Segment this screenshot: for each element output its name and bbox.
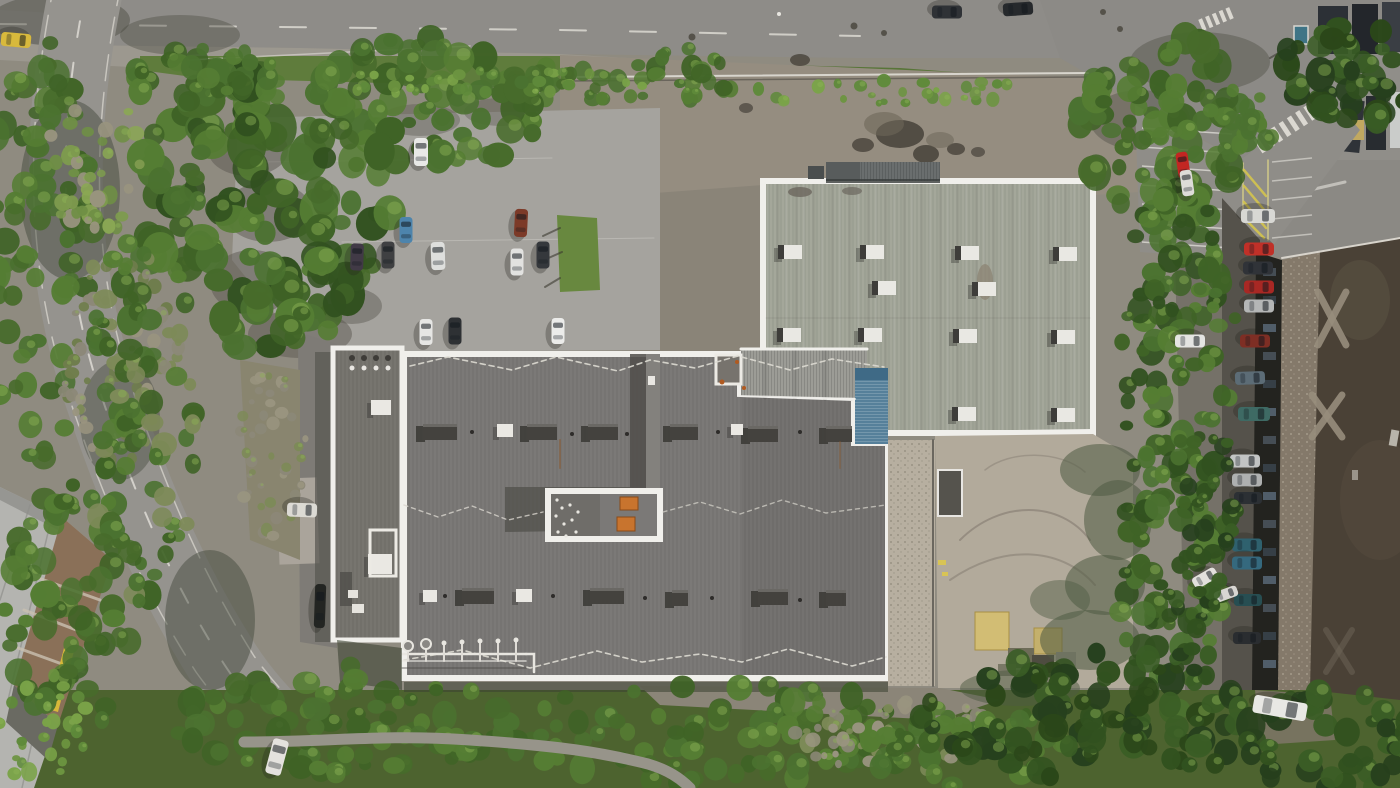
trees-right-lower	[1119, 567, 1132, 578]
trees-bottom-left-highlight	[410, 695, 416, 700]
bushes-strip-highlight	[562, 69, 566, 73]
trees-strip	[637, 92, 648, 100]
bushes-strip-highlight	[479, 68, 483, 71]
rocky-bottom	[810, 751, 821, 761]
car-part	[514, 209, 528, 238]
car-part	[1234, 594, 1262, 606]
trees-upper-band-highlight	[318, 124, 327, 132]
oil-stain	[790, 54, 810, 66]
yard-tree-shadow	[1030, 580, 1090, 620]
trees-ne-corner	[1375, 43, 1390, 55]
trees-left-mid	[93, 431, 113, 449]
trees-right-lower	[1137, 447, 1155, 468]
trees-upper-left	[306, 176, 331, 203]
right-facade-doors	[1263, 548, 1276, 556]
bushes-strip-highlight	[437, 76, 441, 79]
trees-ne-corner	[1370, 19, 1392, 43]
trees-bottom-left	[182, 727, 203, 753]
car-part	[1241, 209, 1275, 223]
trees-left-mid	[176, 292, 195, 313]
pipe-flange-small	[442, 641, 447, 646]
trees-bottom-left-highlight	[308, 748, 318, 757]
car-part	[1233, 632, 1261, 644]
grass-left-top	[62, 117, 77, 130]
grass-left-top	[82, 127, 94, 137]
trees-bottom-mid	[728, 764, 745, 784]
trees-upper-band	[329, 118, 352, 140]
grass-left-top	[71, 155, 83, 169]
trees-bottom-right	[1087, 682, 1110, 709]
aerial-photo-stage	[0, 0, 1400, 788]
trees-overhang-lane2-highlight	[1194, 547, 1202, 555]
roof-units-row2-top	[462, 588, 494, 591]
car-part	[1249, 282, 1254, 292]
rocky-bottom	[805, 732, 820, 747]
trees-corner-se-highlight	[1267, 740, 1275, 747]
car-part	[1263, 301, 1269, 311]
trees-bottom-mid-highlight	[796, 758, 806, 767]
grass-left-top	[49, 155, 62, 170]
lightwell-pipes	[560, 506, 563, 509]
trees-bottom-mid-highlight	[690, 743, 700, 752]
bushes-strip	[453, 69, 466, 80]
trees-upper-band-highlight	[426, 102, 434, 109]
trees-left-mid-highlight	[171, 518, 179, 525]
trees-right-mid	[1194, 283, 1207, 295]
car-part	[433, 260, 444, 265]
trees-upper-band-highlight	[376, 105, 385, 113]
trees-far-left-highlight	[15, 73, 27, 83]
trees-left-mid	[117, 339, 143, 361]
trees-right-mid	[1209, 288, 1223, 298]
trees-upper-band-highlight	[325, 66, 336, 76]
trees-right-mid	[1153, 296, 1166, 310]
lightwell-pipes	[576, 510, 579, 513]
trees-bottom-right-highlight	[993, 742, 1004, 752]
trees-ne-corner-highlight	[1375, 110, 1386, 120]
manhole	[881, 30, 887, 36]
rocky-left	[58, 386, 70, 397]
trees-bottom-mid-highlight	[766, 725, 778, 735]
trees-bottom-right	[1136, 645, 1160, 673]
trees-right-mid-highlight	[1153, 410, 1163, 419]
trees-overhang-lane	[1220, 457, 1233, 472]
roof-white-hatches	[423, 590, 437, 602]
trees-bottom-mid	[840, 682, 863, 710]
rooftop-box	[808, 166, 824, 179]
trees-bottom-right	[1048, 672, 1071, 696]
trees-bottom-mid-highlight	[748, 729, 759, 739]
right-facade-doors	[1263, 604, 1276, 612]
trees-right-lower-highlight	[1119, 604, 1129, 613]
trees-far-left	[16, 245, 34, 262]
trees-upper-left-highlight	[276, 179, 293, 195]
rocky-left	[84, 377, 91, 384]
bushes-strip	[388, 80, 401, 92]
trees-bottom-left	[178, 687, 206, 717]
trees-left-mid	[168, 262, 183, 279]
trees-bottom-left	[251, 681, 278, 705]
bushes-strip2	[876, 100, 882, 107]
trees-left-mid-highlight	[135, 306, 142, 312]
manhole	[1100, 9, 1106, 15]
grass-left-top	[44, 129, 57, 141]
trees-bottom-right-highlight	[931, 721, 938, 728]
bushes-strip2	[840, 95, 847, 103]
car-part	[538, 259, 548, 263]
trees-bottom-right	[1130, 695, 1149, 716]
bushes-strip	[434, 75, 443, 85]
car-part	[552, 318, 565, 344]
trees-bottom-left	[379, 711, 397, 726]
trees-right-lower	[1202, 634, 1217, 647]
trees-corner-se	[1305, 679, 1331, 707]
grass-left-bottom	[12, 755, 20, 761]
trees-bottom-mid-highlight	[737, 679, 749, 689]
rocky-slope-mid	[257, 503, 265, 510]
trees-overhang-lane2	[1182, 570, 1193, 580]
car-part	[6, 34, 12, 45]
trees-upper-band-highlight	[407, 52, 418, 62]
trees-far-left	[59, 252, 84, 274]
car-part	[287, 502, 317, 517]
bushes-strip	[421, 84, 429, 93]
trees-bottom-right	[922, 693, 938, 712]
car-part	[0, 32, 31, 49]
roof-small-dots	[625, 432, 629, 436]
trees-upper-band	[483, 143, 514, 168]
trees-left-mid-highlight	[111, 252, 120, 260]
trees-bottom-right	[1181, 757, 1197, 772]
car-part	[1237, 540, 1242, 550]
trees-left-lower	[36, 580, 61, 608]
roof-white-hatches	[731, 424, 743, 435]
trees-upper-left-highlight	[196, 195, 204, 202]
trees-right-lower	[1153, 579, 1168, 590]
grass-left-bottom-highlight	[21, 759, 25, 763]
bushes-strip2-highlight	[695, 89, 698, 92]
trees-left-lower	[1, 555, 28, 585]
trees-right-mid	[1203, 412, 1221, 428]
rocky-slope-mid	[266, 416, 279, 430]
trees-bottom-mid-highlight	[808, 683, 819, 692]
car-part	[432, 247, 443, 253]
trees-upper-left-highlight	[250, 217, 258, 224]
trees-strip2-highlight	[679, 79, 684, 84]
trees-right-mid	[1200, 205, 1214, 217]
trees-upper-left	[318, 320, 338, 340]
trees-bottom-mid	[752, 755, 771, 770]
trees-corner-se-highlight	[1363, 689, 1371, 696]
car-part	[1244, 243, 1274, 256]
trees-bottom-mid	[667, 725, 685, 740]
rocky-slope-mid-highlight	[243, 428, 246, 431]
trees-right-small	[1227, 84, 1239, 98]
rocky-left-highlight	[65, 381, 68, 384]
trees-bottom-mid	[557, 690, 573, 705]
trees-left-mid	[128, 573, 145, 591]
trees-far-left	[35, 440, 53, 462]
trees-overhang-lane2	[1200, 645, 1217, 664]
trees-topleft-band	[238, 44, 251, 59]
trees-overhang-lane2	[1183, 642, 1201, 655]
rocky-left-highlight	[67, 361, 71, 365]
trees-right-upper	[1187, 146, 1204, 164]
grass-left-bottom-highlight	[13, 769, 19, 775]
trees-bottom-mid	[726, 675, 752, 701]
trees-left-lower	[111, 627, 129, 648]
pipe-flange-small	[496, 639, 501, 644]
trees-bottom-right-highlight	[961, 740, 970, 748]
grass-left-bottom	[35, 693, 43, 700]
bushes-strip2	[979, 84, 986, 91]
grass-left-top	[66, 195, 78, 209]
rocky-slope-mid	[275, 408, 286, 418]
right-facade-doors	[1263, 324, 1276, 332]
trees-upper-left	[281, 206, 300, 229]
trees-far-left-highlight	[64, 96, 74, 105]
trees-topleft-band-highlight	[266, 70, 276, 79]
pipe-flange-small	[478, 639, 483, 644]
grass-left-top	[97, 170, 106, 177]
trees-bottom-mid2-highlight	[928, 734, 938, 743]
trees-right-mid	[1114, 334, 1130, 351]
car-part	[421, 336, 431, 340]
grass-left-bottom	[78, 742, 87, 752]
trees-right-mid	[1198, 256, 1220, 283]
trees-upper-band-highlight	[509, 119, 522, 131]
manhole	[1117, 26, 1123, 32]
bushes-strip	[476, 66, 485, 75]
trees-upper-left-highlight	[153, 127, 162, 135]
trees-topleft-band	[135, 66, 149, 80]
car-part	[538, 246, 548, 251]
trees-right-mid-highlight	[1175, 357, 1182, 363]
trees-right-upper-highlight	[1207, 93, 1214, 99]
trees-bottom-right	[976, 667, 1000, 690]
trees-upper-left-highlight	[289, 211, 298, 219]
trees-right-lower	[1119, 632, 1133, 648]
car-part	[553, 323, 563, 328]
trees-upper-left-highlight	[229, 191, 242, 202]
car	[927, 0, 962, 19]
trees-strip2	[655, 49, 669, 66]
trees-left-mid	[166, 367, 188, 386]
trees-bottom-left	[337, 746, 354, 763]
trees-right-small	[1234, 141, 1247, 153]
rocky-slope-mid	[297, 482, 304, 489]
grass-left-top	[135, 159, 145, 169]
trees-upper-left-highlight	[179, 218, 190, 228]
trees-bottom-right-highlight	[996, 723, 1004, 730]
car-part	[1003, 1, 1034, 16]
trees-ne-corner-highlight	[1347, 35, 1354, 42]
car-part	[292, 504, 297, 515]
rocky-left	[74, 342, 86, 356]
car-part	[316, 592, 324, 601]
trees-upper-left-highlight	[300, 307, 308, 314]
rocky-left-highlight	[146, 271, 150, 274]
trees-left-mid	[152, 507, 172, 527]
rocky-bottom-highlight	[832, 710, 836, 713]
roof-small-dots	[470, 430, 474, 434]
car-part	[352, 248, 362, 254]
trees-bottom-left	[429, 684, 443, 696]
rocky-slope-mid	[270, 512, 282, 524]
trees-bottom-left-highlight	[324, 687, 333, 695]
trees-left-mid-highlight	[121, 275, 132, 285]
roof-units-row2-top	[826, 590, 846, 593]
trees-far-left	[55, 419, 75, 436]
trees-right-lower-highlight	[1124, 568, 1130, 573]
lightwell-pipes	[568, 503, 571, 506]
bushes-strip2-highlight	[974, 89, 979, 94]
rocky-bottom-highlight	[824, 754, 827, 756]
yard-dark-patch	[938, 470, 962, 516]
trees-bottom-mid	[537, 700, 551, 716]
trees-right-upper-highlight	[1129, 57, 1139, 66]
car-part	[1263, 282, 1269, 292]
trees-right-mid	[1131, 368, 1148, 386]
grass-left-bottom	[58, 757, 67, 767]
rocky-slope-mid	[280, 383, 289, 392]
car-part	[383, 259, 393, 263]
trees-right-mid-highlight	[1213, 250, 1221, 257]
car-part	[314, 584, 327, 628]
bushes-strip2	[877, 74, 891, 88]
rocky-slope-mid	[281, 376, 288, 382]
trees-bottom-left-highlight	[355, 708, 364, 716]
lightwell-pipes	[556, 530, 559, 533]
grass-left-top	[90, 190, 106, 207]
warehouse-vents-dark	[955, 246, 961, 260]
trees-bottom-right	[1014, 746, 1030, 762]
rocky-left	[63, 360, 73, 369]
oil-stain	[739, 103, 753, 113]
bushes-strip2	[933, 87, 939, 93]
trees-left-lower-highlight	[25, 545, 36, 554]
trees-right-mid	[1205, 230, 1220, 246]
car-part	[1240, 335, 1270, 348]
bushes-strip2-highlight	[783, 96, 788, 101]
grass-left-top	[90, 221, 100, 233]
trees-right-lower	[1144, 494, 1170, 521]
roof-corridor-shadow	[630, 354, 646, 490]
trees-upper-left	[189, 191, 206, 211]
rocky-slope-mid	[287, 413, 297, 422]
trees-ne-corner	[1343, 61, 1359, 81]
bushes-strip-highlight	[360, 72, 364, 76]
wing-equipment-dark	[361, 355, 367, 361]
roof-small-dots	[443, 594, 447, 598]
trees-left-lower-highlight	[101, 715, 108, 721]
car-part	[1245, 336, 1250, 346]
trees-left-mid	[157, 545, 173, 563]
right-facade-doors	[1263, 520, 1276, 528]
trees-right-lower	[1109, 601, 1132, 622]
trees-ne-corner-highlight	[1318, 64, 1331, 76]
grass-left-bottom	[78, 702, 93, 715]
grass-left-top	[98, 122, 113, 138]
trees-bottom-right-highlight	[1229, 686, 1240, 695]
trees-bottom-right	[1031, 672, 1047, 684]
warehouse-vents-dark	[1051, 408, 1057, 422]
trees-bottom-left	[485, 697, 511, 719]
trees-corner-se	[1353, 746, 1373, 767]
car-part	[553, 335, 563, 339]
trees-left-mid	[139, 390, 163, 415]
car-part	[416, 143, 427, 149]
car-part	[400, 217, 413, 243]
bushes-strip2	[1001, 78, 1012, 90]
rocky-bottom	[962, 703, 970, 712]
trees-bottom-right-highlight	[1214, 757, 1222, 764]
bushes-strip2	[917, 77, 930, 87]
wing-equipment-white	[374, 366, 379, 371]
rocky-bottom	[821, 752, 827, 759]
bushes-strip2-highlight	[860, 81, 866, 86]
trees-bottom-left-highlight	[246, 756, 252, 761]
bushes-strip2	[939, 92, 951, 107]
rooftop-container-end	[826, 162, 860, 181]
roof-units-row1-top	[527, 424, 557, 427]
trees-bottom-right	[1161, 748, 1180, 770]
trees-bottom-left-highlight	[335, 768, 344, 776]
oil-stain	[926, 132, 954, 148]
bushes-strip	[352, 84, 362, 96]
rocky-slope-mid	[265, 399, 275, 407]
trees-left-mid-highlight	[191, 418, 198, 425]
trees-corner-se	[1377, 719, 1396, 738]
manhole	[851, 23, 858, 30]
bushes-strip2	[898, 87, 907, 97]
car-part	[1235, 371, 1265, 385]
warehouse-south-trim	[935, 431, 1093, 433]
trees-bottom-right	[1122, 718, 1143, 734]
trees-bottom-mid	[534, 750, 555, 771]
trees-bottom-left-highlight	[329, 715, 340, 725]
trees-left-mid-highlight	[138, 433, 145, 439]
trees-upper-left	[280, 143, 315, 175]
scene-root	[0, 0, 1400, 788]
grass-left-bottom-highlight	[47, 703, 51, 706]
rocky-slope-mid	[294, 442, 304, 451]
trees-left-mid-highlight	[137, 285, 148, 295]
trees-left-mid-highlight	[136, 576, 144, 583]
roof-small-dots	[643, 596, 647, 600]
lightwell-pipes	[564, 534, 567, 537]
car-part	[1175, 335, 1205, 348]
trees-strip2	[714, 80, 733, 96]
trees-strip2	[714, 56, 726, 70]
wing-equipment-white	[386, 366, 391, 371]
trees-upper-left-highlight	[319, 248, 335, 262]
trees-strip-highlight	[599, 71, 608, 79]
trees-bottom-mid-highlight	[767, 679, 776, 687]
trees-overhang-lane2-highlight	[1213, 600, 1218, 605]
trees-bottom-right	[989, 718, 1006, 739]
trees-overhang-lane2	[1186, 664, 1202, 677]
trees-ne-corner	[1306, 57, 1335, 92]
trees-right-lower	[1186, 435, 1202, 448]
rocky-slope-mid	[281, 462, 291, 471]
trees-overhang-lane2-highlight	[1168, 590, 1174, 595]
trees-far-left	[26, 268, 44, 287]
car-part	[1247, 211, 1252, 222]
trees-overhang-lane2	[1186, 544, 1205, 563]
trees-overhang-lane	[1180, 478, 1198, 496]
rust-dot	[735, 360, 739, 364]
